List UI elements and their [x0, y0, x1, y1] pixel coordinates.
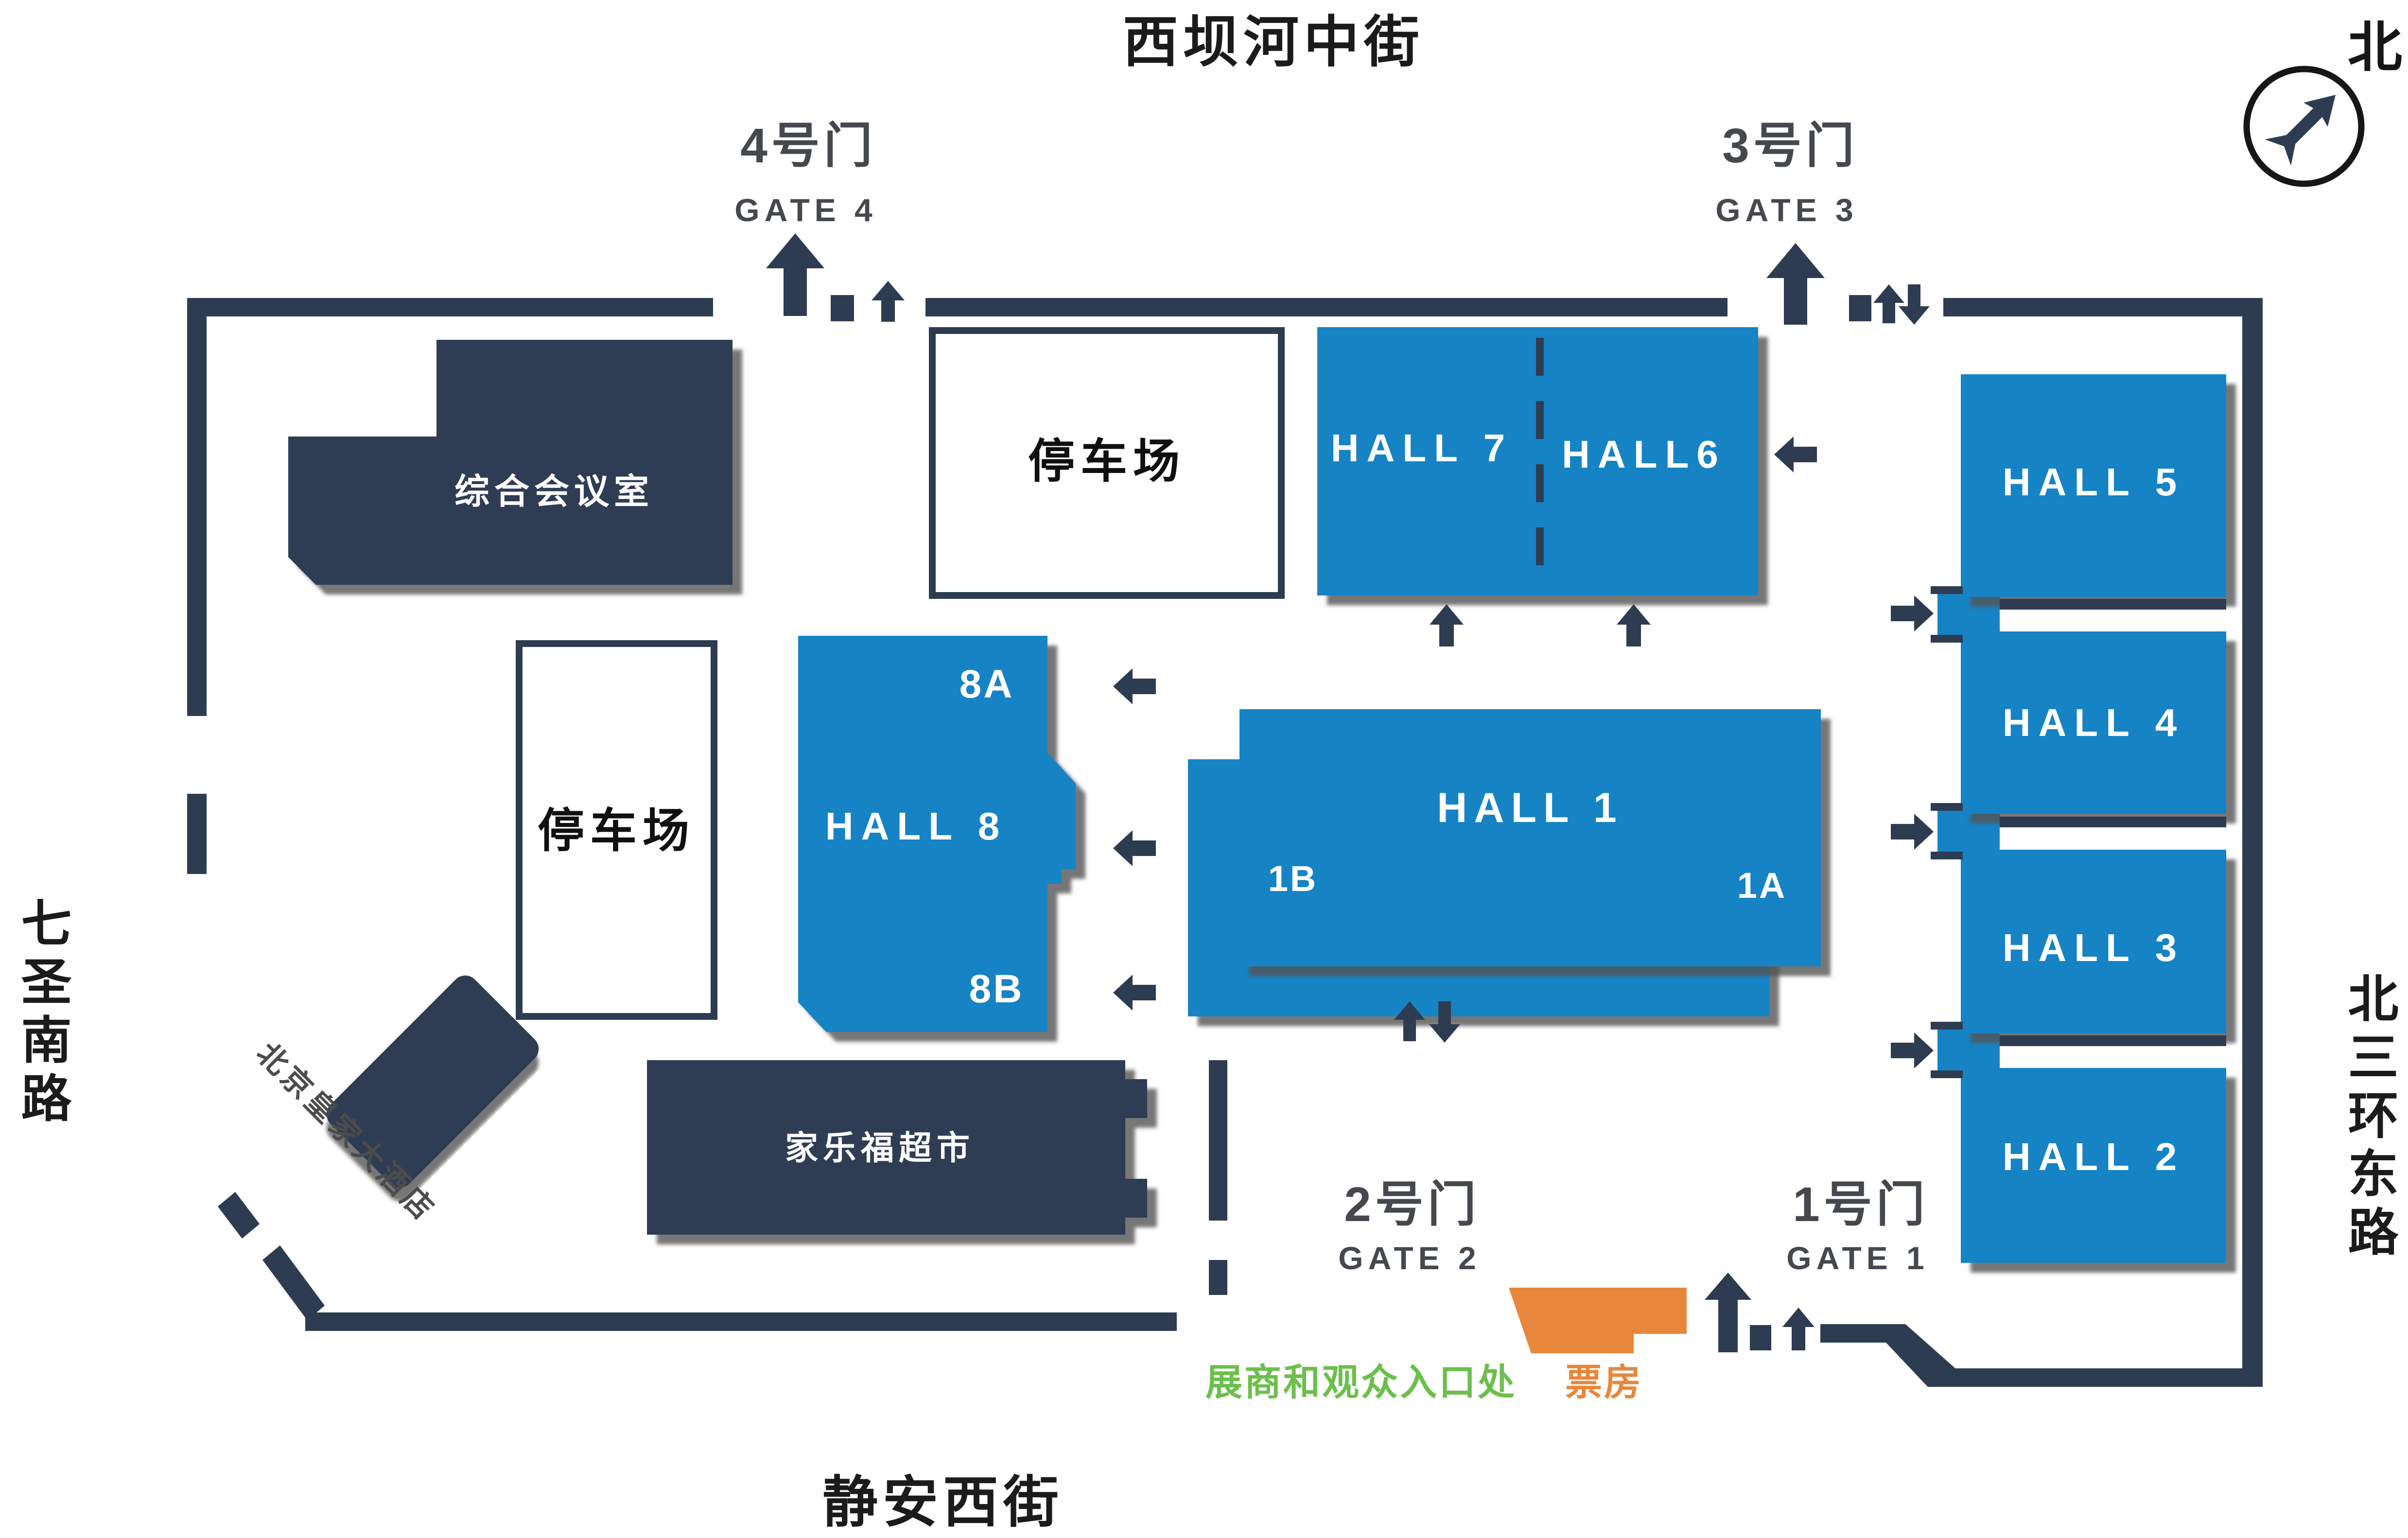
connector-notch-2a	[1931, 803, 1963, 811]
connector-notch-3b	[1931, 1070, 1963, 1078]
wall-bottom-diagonal-east	[1886, 1324, 1956, 1387]
compass-north-label: 北	[2348, 20, 2402, 75]
hall-3-2-gap-line	[2000, 1035, 2226, 1046]
box-office-building	[1509, 1288, 1687, 1353]
parking-west-label: 停车场	[538, 808, 695, 855]
wall-gate1-block	[1750, 1325, 1771, 1350]
street-label-west: 七圣南路	[16, 897, 67, 1130]
wall-bottom-east	[1937, 1368, 2259, 1387]
gate-2-label-en: GATE 2	[1338, 1242, 1481, 1274]
wall-bottom-gate1-segment	[1820, 1324, 1886, 1343]
wall-top-middle	[925, 298, 1727, 316]
gate-3-label-en: GATE 3	[1715, 194, 1858, 226]
hall-3-label: HALL 3	[2003, 928, 2185, 967]
hall-6-entry-arrow-icon	[1617, 604, 1651, 647]
gate-3-small-up-arrow-icon	[1873, 284, 1904, 323]
hall-8-arrow-icon	[1113, 830, 1156, 866]
supermarket-label: 家乐福超市	[785, 1132, 975, 1165]
entrance-arrow-icon	[1705, 1273, 1751, 1352]
gate-1-label-cn: 1号门	[1793, 1180, 1929, 1229]
hall-8-label: HALL 8	[825, 807, 1008, 846]
wall-gate4-block	[831, 295, 854, 321]
street-label-north: 西坝河中街	[1123, 15, 1424, 70]
gate-3-small-down-arrow-icon	[1899, 284, 1930, 325]
wall-gate2-block	[1209, 1260, 1227, 1295]
conference-room-label: 综合会议室	[454, 474, 654, 509]
gate-4-label-cn: 4号门	[740, 122, 876, 170]
wall-gate3-block	[1849, 295, 1871, 321]
wall-west-middle	[187, 794, 207, 874]
hall-1a-label: 1A	[1737, 868, 1787, 904]
hall-8a-label: 8A	[960, 664, 1014, 704]
conference-room-building	[288, 340, 733, 585]
hall-6-side-arrow-icon	[1774, 437, 1817, 472]
wall-top-east	[1943, 298, 2263, 316]
hall-5-label: HALL 5	[2003, 463, 2185, 502]
hall-4-3-gap-line	[2000, 817, 2226, 827]
gate-3-label-cn: 3号门	[1722, 122, 1858, 170]
hall-4-label: HALL 4	[2003, 703, 2185, 742]
gate-2-label-cn: 2号门	[1344, 1180, 1480, 1229]
parking-north-label: 停车场	[1028, 438, 1186, 485]
street-label-south: 静安西街	[822, 1475, 1064, 1531]
hall-6-label: HALL6	[1562, 435, 1726, 474]
hall-1-building	[1239, 709, 1821, 966]
hall-5-4-connector	[1937, 594, 1961, 635]
exhibition-center-map: 西坝河中街 七圣南路 北三环东路 静安西街 北 4号门 GATE 4 3号门 G…	[0, 0, 2408, 1538]
wall-east	[2242, 298, 2263, 1387]
connector-notch-2b	[1931, 852, 1963, 859]
hall-5-4-arrow-icon	[1891, 595, 1934, 631]
connector-notch-1b	[1931, 635, 1963, 643]
gate-4-label-en: GATE 4	[734, 194, 877, 226]
wall-diagonal-southwest-upper	[218, 1192, 260, 1239]
hall-4-3-connector	[1937, 811, 1961, 852]
hall-8b-label: 8B	[969, 969, 1024, 1009]
hall-4-3-arrow-icon	[1891, 814, 1934, 850]
hall-2-label: HALL 2	[2003, 1137, 2185, 1176]
gate-1-label-en: GATE 1	[1786, 1242, 1929, 1274]
box-office-label: 票房	[1565, 1364, 1643, 1401]
hall-1-label: HALL 1	[1437, 787, 1623, 829]
street-label-east: 北三环东路	[2343, 972, 2393, 1264]
wall-west-upper	[187, 298, 207, 716]
hall-8a-arrow-icon	[1113, 668, 1156, 704]
visitor-entrance-label: 展商和观众入口处	[1205, 1364, 1517, 1401]
wall-top-west	[187, 298, 713, 316]
hall-7-label: HALL 7	[1331, 429, 1513, 468]
connector-notch-1a	[1931, 586, 1963, 594]
hall-5-4-gap-line	[2000, 599, 2226, 610]
wall-diagonal-southwest-lower	[262, 1245, 325, 1320]
wall-gate2-vertical	[1209, 1060, 1227, 1221]
gate-3-arrow-icon	[1766, 243, 1825, 325]
gate-1-small-arrow-icon	[1782, 1308, 1815, 1350]
map-graphics-layer	[0, 0, 2408, 1538]
hall-8b-arrow-icon	[1113, 975, 1156, 1011]
gate-4-arrow-icon	[766, 233, 824, 316]
gate-4-small-arrow-icon	[872, 281, 905, 322]
connector-notch-3a	[1931, 1022, 1963, 1030]
hall-1b-label: 1B	[1268, 861, 1318, 897]
wall-bottom-west	[305, 1312, 1177, 1331]
hall-7-entry-arrow-icon	[1430, 604, 1464, 647]
hall-3-2-arrow-icon	[1891, 1032, 1934, 1068]
hall-3-2-connector	[1937, 1030, 1961, 1070]
